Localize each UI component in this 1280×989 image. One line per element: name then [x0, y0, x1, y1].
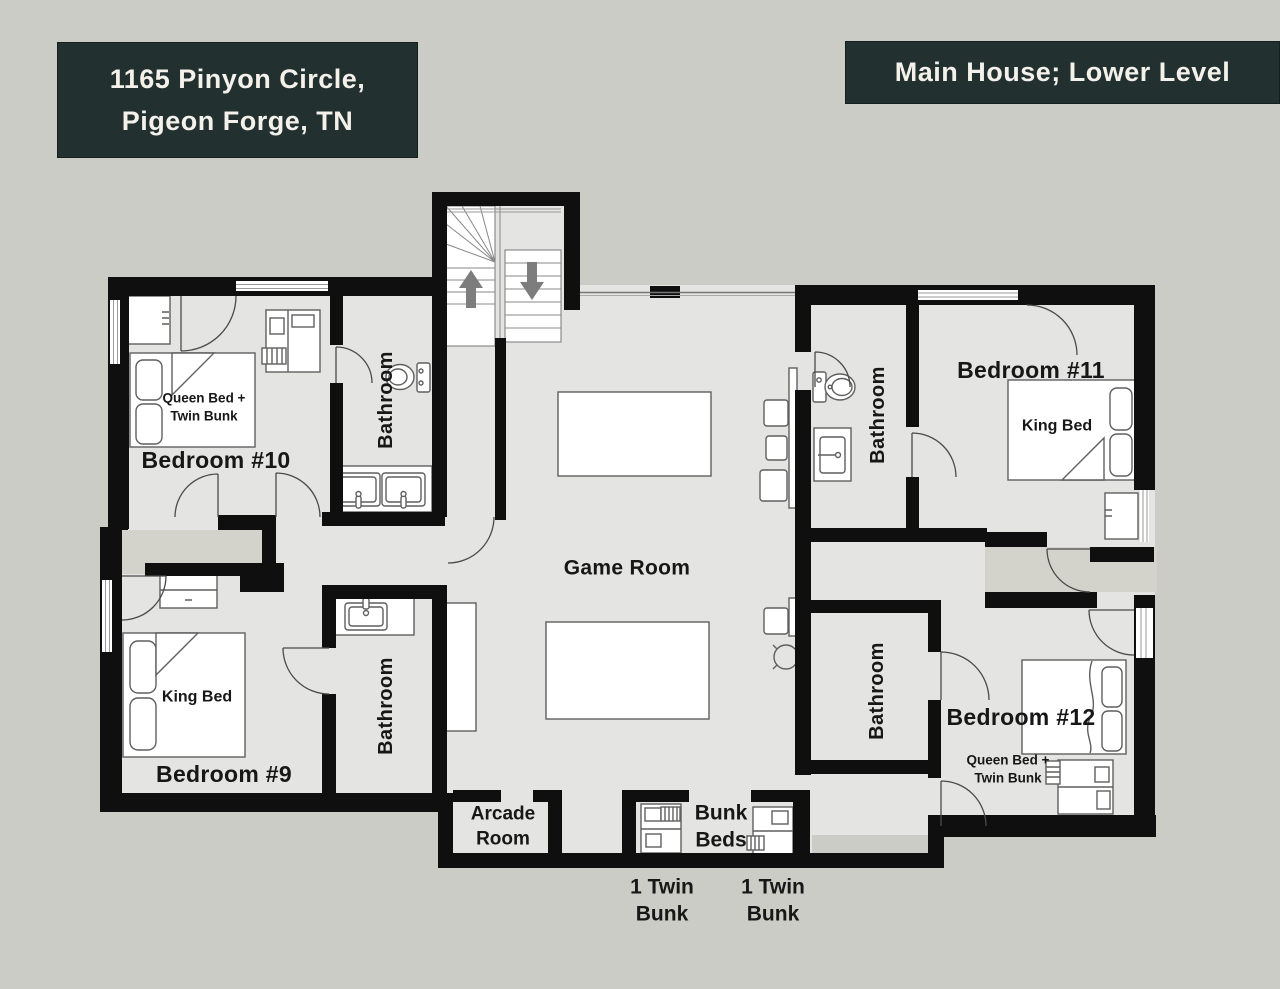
bunk-beds-label: Bunk Beds	[695, 800, 748, 855]
sink-bathroom-top-right	[814, 428, 851, 481]
bedroom11-label: Bedroom #11	[957, 356, 1105, 386]
round-table	[774, 645, 798, 669]
bathroom-bottom-right-label: Bathroom	[864, 642, 890, 740]
bunk-bed-bedroom10	[262, 310, 320, 372]
bathroom-top-left-label: Bathroom	[373, 351, 399, 449]
bedroom10-label: Bedroom #10	[141, 446, 290, 476]
game-table-upper	[558, 392, 711, 476]
double-vanity-bathroom-top-left	[331, 466, 432, 512]
twin-bunk-right	[747, 807, 793, 854]
bedroom12-bed-caption: Queen Bed + Twin Bunk	[967, 751, 1050, 786]
game-table-lower	[546, 622, 709, 719]
bathroom-bottom-left-label: Bathroom	[373, 657, 399, 755]
twin-bunk-left-caption: 1 Twin Bunk	[630, 874, 694, 929]
bedroom10-bed-caption: Queen Bed + Twin Bunk	[163, 389, 246, 424]
bedroom9-bed-caption: King Bed	[162, 688, 232, 709]
bedroom11-bed-caption: King Bed	[1022, 417, 1092, 438]
bedroom9-label: Bedroom #9	[156, 760, 292, 790]
closet-bedroom11	[1105, 493, 1138, 539]
twin-bunk-right-caption: 1 Twin Bunk	[741, 874, 805, 929]
closet-bedroom10	[128, 296, 170, 344]
twin-bunk-left	[641, 804, 681, 853]
arcade-room-label: Arcade Room	[471, 802, 535, 851]
vanity-bathroom-bottom-left	[334, 597, 414, 635]
game-room-label: Game Room	[564, 554, 690, 581]
floorplan-page: 1165 Pinyon Circle, Pigeon Forge, TN Mai…	[0, 0, 1280, 989]
bathroom-top-right-label: Bathroom	[865, 366, 891, 464]
bedroom12-label: Bedroom #12	[946, 703, 1095, 733]
floorplan-drawing	[0, 0, 1280, 989]
shuffleboard-table	[444, 603, 476, 731]
dresser-bedroom9	[160, 572, 217, 608]
